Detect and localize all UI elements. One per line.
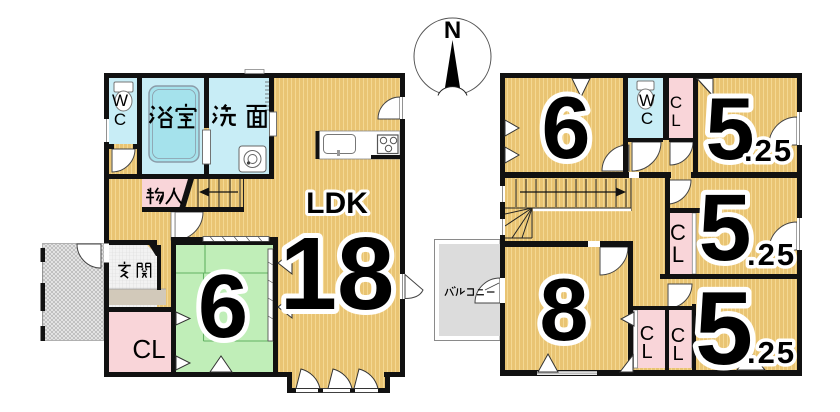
svg-text:L: L <box>672 343 683 365</box>
svg-text:.25: .25 <box>747 335 796 370</box>
svg-text:5: 5 <box>699 175 752 281</box>
svg-text:18: 18 <box>280 216 395 331</box>
svg-text:.25: .25 <box>744 133 793 168</box>
svg-text:8: 8 <box>540 260 589 359</box>
svg-text:L: L <box>672 242 684 267</box>
svg-text:6: 6 <box>542 78 591 177</box>
svg-text:6: 6 <box>198 257 248 357</box>
svg-text:W: W <box>639 91 655 110</box>
svg-text:L: L <box>641 341 652 363</box>
svg-text:CL: CL <box>132 334 165 364</box>
svg-text:C: C <box>670 93 682 112</box>
svg-text:W: W <box>112 91 128 110</box>
svg-text:C: C <box>114 110 126 129</box>
svg-text:.25: .25 <box>747 237 796 272</box>
svg-text:5: 5 <box>695 271 753 387</box>
svg-text:N: N <box>444 17 461 44</box>
svg-text:L: L <box>671 111 680 130</box>
svg-text:C: C <box>641 109 653 128</box>
